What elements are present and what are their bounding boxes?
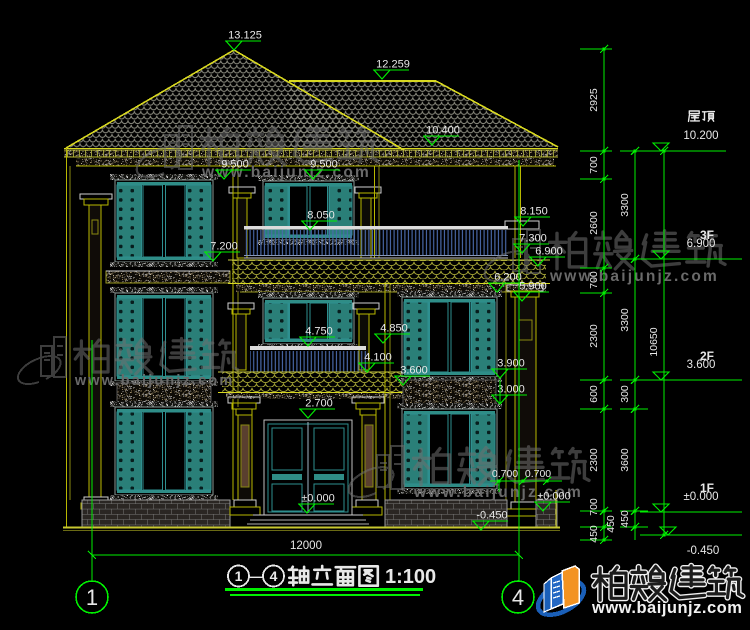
svg-text:www.baijunjz.com: www.baijunjz.com: [591, 599, 742, 617]
svg-text:2.700: 2.700: [305, 398, 333, 410]
svg-text:12000: 12000: [290, 540, 322, 552]
svg-text:4: 4: [512, 585, 524, 610]
svg-text:±0.000: ±0.000: [537, 491, 571, 503]
svg-text:±0.000: ±0.000: [301, 493, 335, 505]
svg-text:12.259: 12.259: [376, 59, 410, 71]
svg-text:2300: 2300: [588, 324, 600, 348]
svg-text:±0.000: ±0.000: [683, 491, 718, 503]
svg-text:450: 450: [588, 525, 600, 543]
svg-text:3.000: 3.000: [497, 384, 525, 396]
svg-text:9.500: 9.500: [310, 159, 338, 171]
svg-text:—: —: [249, 568, 263, 584]
svg-text:300: 300: [619, 385, 631, 403]
svg-text:10650: 10650: [648, 327, 660, 356]
svg-text:2925: 2925: [588, 88, 600, 112]
svg-text:700: 700: [588, 156, 600, 174]
svg-text:1: 1: [86, 585, 98, 610]
svg-text:2300: 2300: [588, 448, 600, 472]
svg-text:10.200: 10.200: [683, 130, 718, 142]
svg-text:8.150: 8.150: [520, 206, 548, 218]
svg-text:6.900: 6.900: [535, 246, 563, 258]
svg-text:3.600: 3.600: [687, 359, 716, 371]
svg-text:3.900: 3.900: [497, 358, 525, 370]
svg-text:450: 450: [605, 515, 617, 533]
svg-text:0.700: 0.700: [525, 468, 551, 480]
svg-text:5.900: 5.900: [519, 281, 547, 293]
svg-text:700: 700: [588, 498, 600, 516]
svg-text:8.050: 8.050: [307, 210, 335, 222]
svg-text:-0.450: -0.450: [687, 545, 720, 557]
svg-text:3600: 3600: [619, 448, 631, 472]
svg-text:10.400: 10.400: [426, 125, 460, 137]
svg-text:0.700: 0.700: [492, 468, 518, 480]
svg-text:www.baijunjz.com: www.baijunjz.com: [549, 268, 719, 285]
svg-text:600: 600: [588, 385, 600, 403]
svg-text:4.850: 4.850: [380, 323, 408, 335]
svg-text:www.baijunjz.com: www.baijunjz.com: [74, 373, 235, 389]
svg-text:13.125: 13.125: [228, 30, 262, 42]
svg-text:3300: 3300: [619, 308, 631, 332]
svg-text:2600: 2600: [588, 211, 600, 235]
svg-text:4.750: 4.750: [305, 326, 333, 338]
svg-text:-0.450: -0.450: [476, 510, 507, 522]
svg-text:700: 700: [588, 271, 600, 289]
svg-text:1: 1: [235, 568, 243, 584]
svg-text:7.200: 7.200: [210, 241, 238, 253]
svg-text:6.200: 6.200: [494, 272, 522, 284]
svg-text:3.600: 3.600: [400, 365, 428, 377]
svg-text:6.900: 6.900: [687, 238, 716, 250]
svg-text:450: 450: [619, 510, 631, 528]
svg-text:3300: 3300: [619, 193, 631, 217]
svg-text:1:100: 1:100: [385, 566, 436, 588]
svg-text:4.100: 4.100: [364, 352, 392, 364]
svg-text:9.500: 9.500: [221, 159, 249, 171]
svg-text:4: 4: [270, 568, 278, 584]
svg-text:7.300: 7.300: [519, 233, 547, 245]
